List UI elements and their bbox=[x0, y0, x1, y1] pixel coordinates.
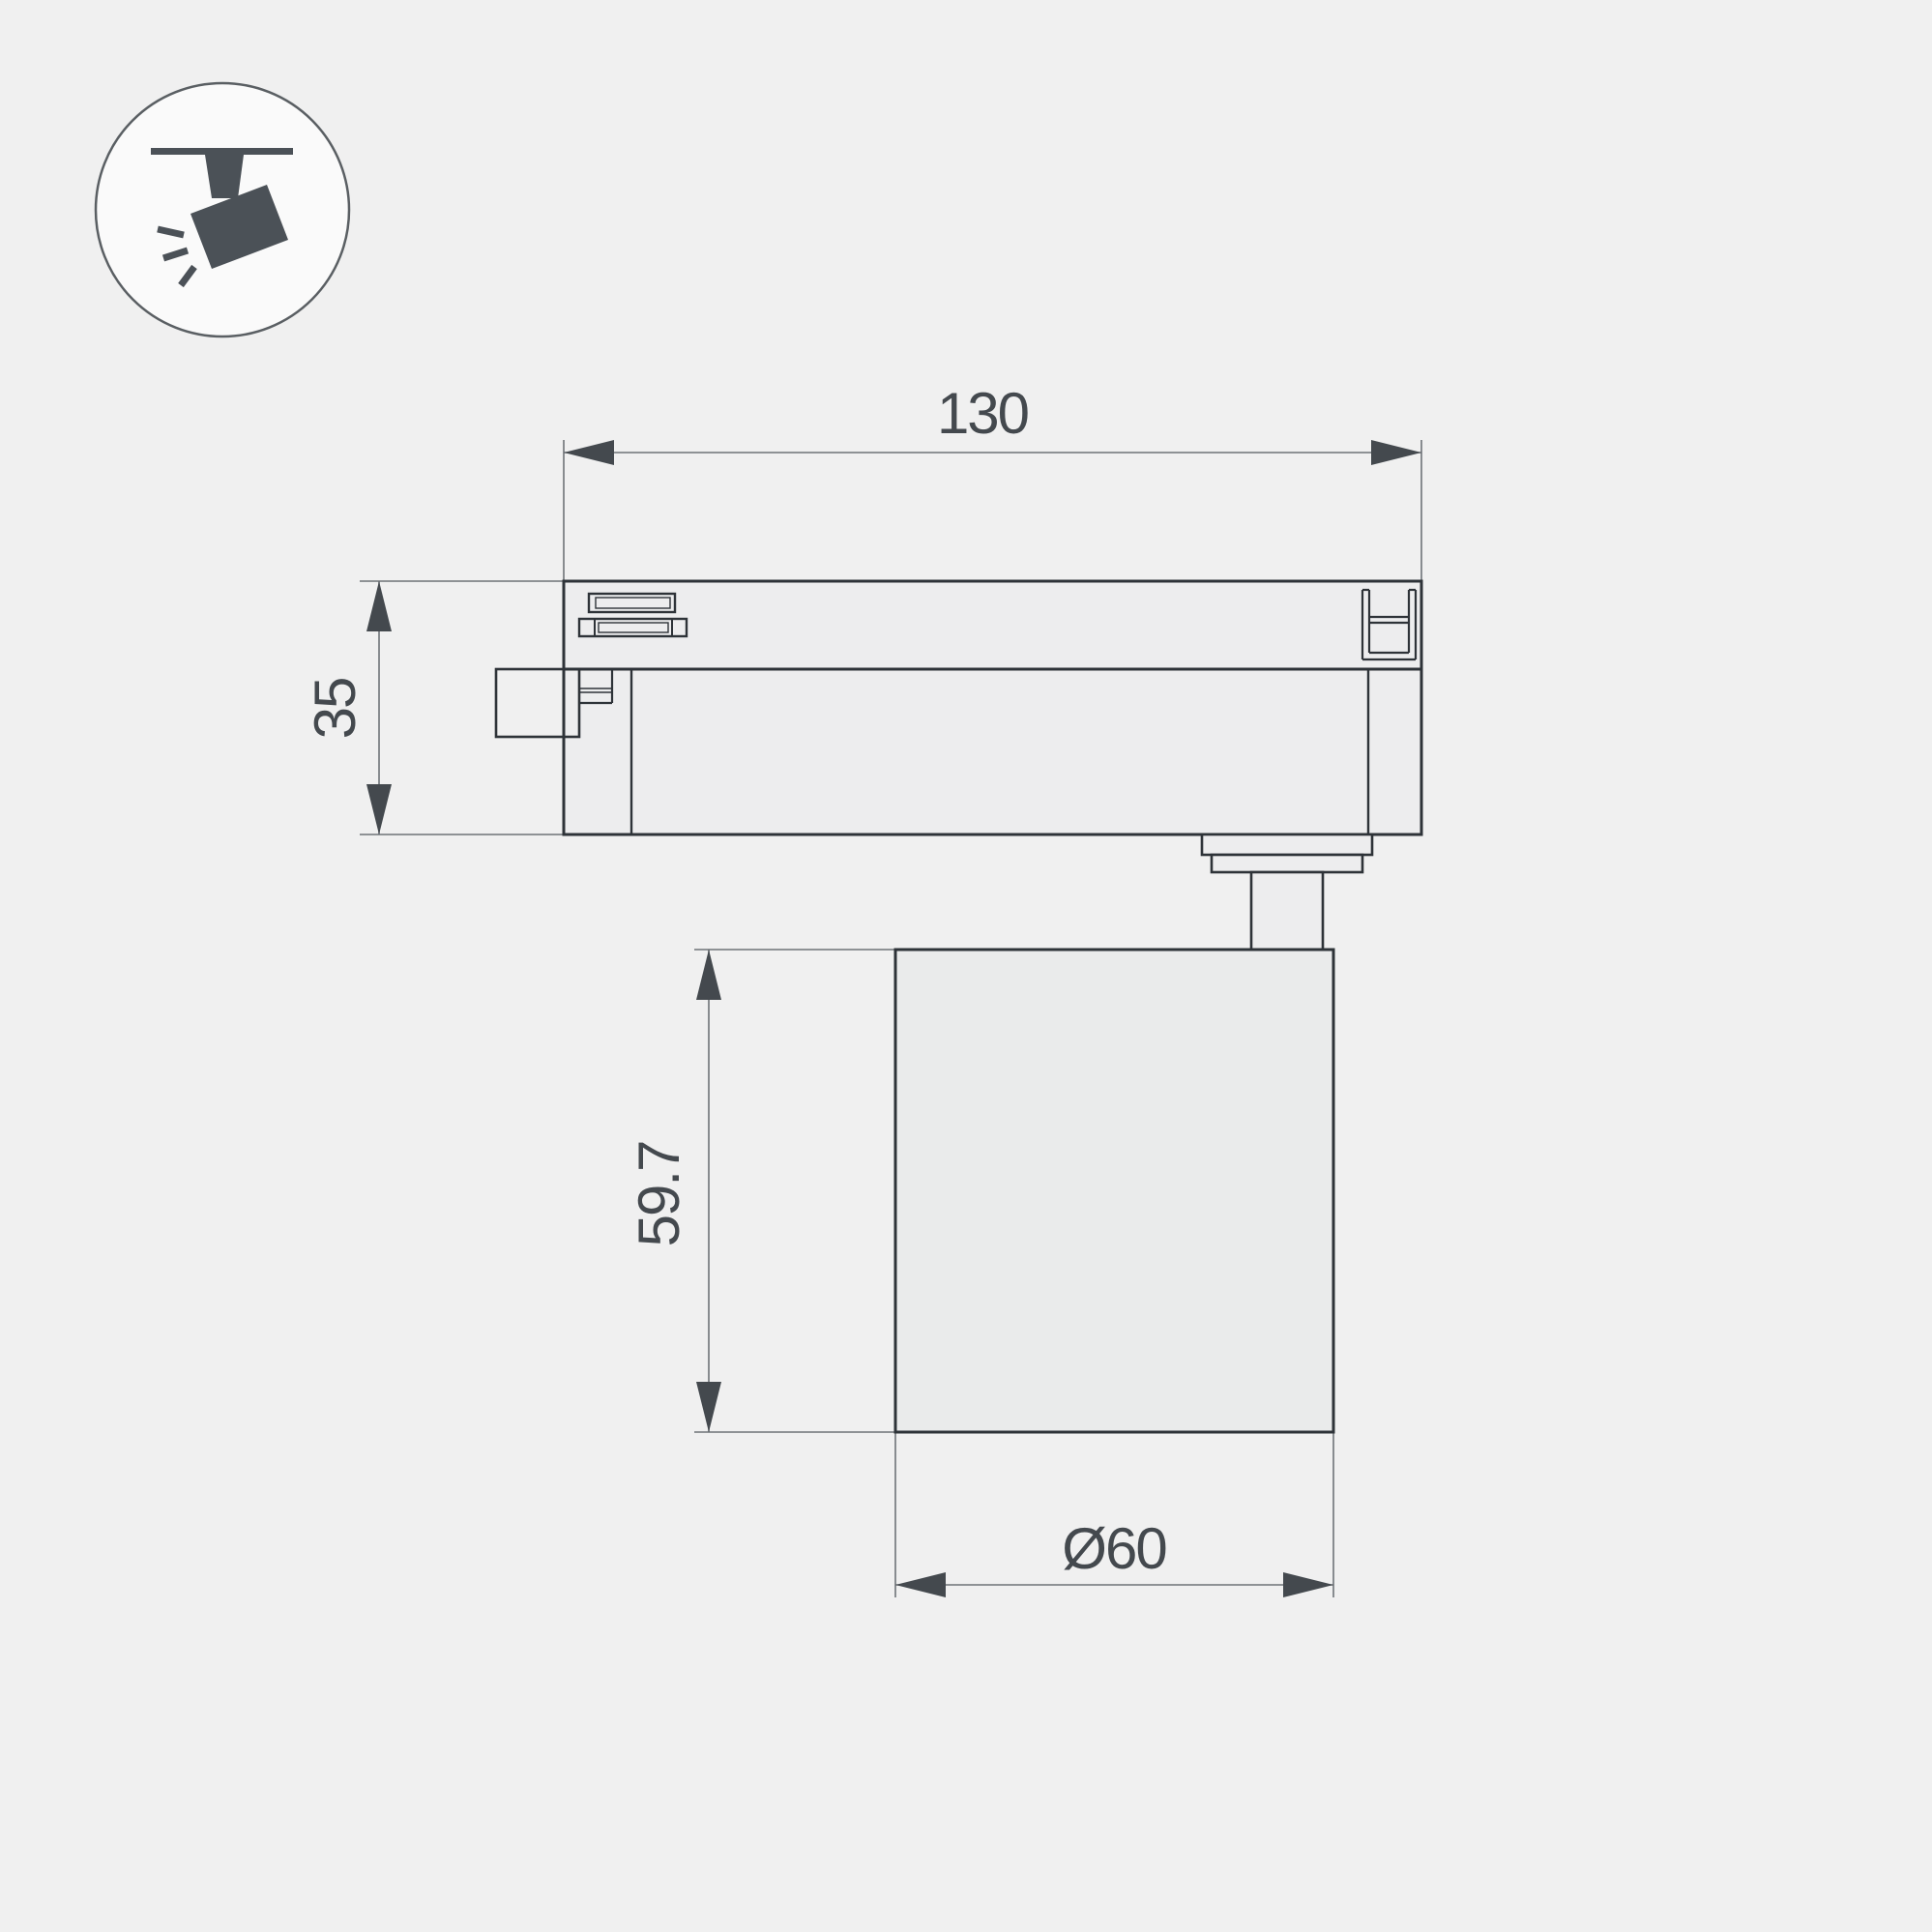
track-spotlight-icon bbox=[96, 83, 349, 337]
dim-label-adapter-height: 35 bbox=[303, 679, 367, 740]
track-adapter bbox=[496, 581, 1421, 834]
dimension-130: 130 bbox=[564, 381, 1421, 465]
arrow-up bbox=[366, 581, 392, 631]
arrow-down bbox=[366, 784, 392, 834]
icon-ceiling-bar bbox=[151, 148, 293, 155]
arrow-left bbox=[895, 1572, 946, 1597]
dimension-59-7: 59.7 bbox=[627, 950, 721, 1432]
arrow-up bbox=[696, 950, 721, 1000]
arrow-right bbox=[1283, 1572, 1333, 1597]
dim-label-adapter-length: 130 bbox=[937, 381, 1029, 446]
arrow-down bbox=[696, 1382, 721, 1432]
pivot-assembly bbox=[1202, 834, 1372, 950]
pivot-stem bbox=[1251, 872, 1323, 950]
dimension-35: 35 bbox=[303, 581, 392, 834]
icon-track-stem bbox=[205, 155, 244, 198]
dim-label-body-height: 59.7 bbox=[627, 1142, 691, 1247]
dim-label-body-diameter: Ø60 bbox=[1062, 1516, 1166, 1581]
dimension-60: Ø60 bbox=[895, 1516, 1333, 1597]
adapter-outline bbox=[564, 581, 1421, 834]
pivot-step-2 bbox=[1212, 855, 1362, 872]
arrow-right bbox=[1371, 440, 1421, 465]
drawing-page: 130 35 59.7 Ø60 bbox=[0, 0, 1932, 1932]
pivot-step-1 bbox=[1202, 834, 1372, 855]
technical-drawing-svg: 130 35 59.7 Ø60 bbox=[0, 0, 1932, 1932]
lamp-body bbox=[895, 950, 1333, 1432]
arrow-left bbox=[564, 440, 614, 465]
